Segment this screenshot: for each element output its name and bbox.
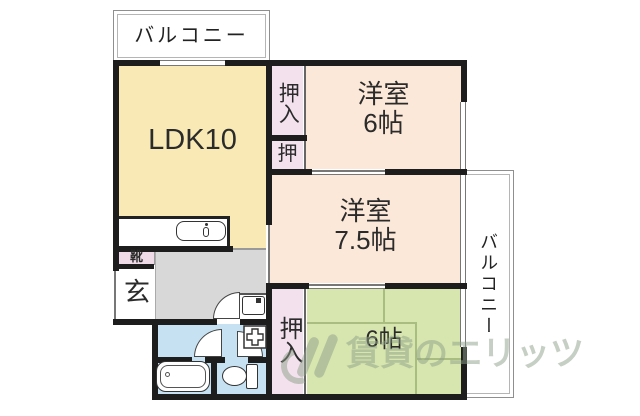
kitchen-sink-icon <box>176 221 226 241</box>
bathtub-drain <box>165 372 170 377</box>
western6-name: 洋室 <box>306 80 461 109</box>
western75-name: 洋室 <box>270 197 461 226</box>
wall-segment <box>113 264 154 269</box>
wall-segment <box>268 60 467 66</box>
entrance-label: 玄 <box>119 278 155 307</box>
wall-segment <box>113 60 160 66</box>
closet-top-label: 押入 <box>272 72 303 134</box>
tatami-line <box>383 289 385 322</box>
western75-label: 洋室 7.5帖 <box>270 197 461 255</box>
kitchen-faucet-icon <box>203 227 209 237</box>
kitchen-faucet-dot <box>205 223 208 226</box>
opening-line <box>233 248 266 250</box>
watermark-text: 賃貸のエリッツ <box>346 326 584 375</box>
wall-segment <box>461 60 467 102</box>
window <box>160 60 225 66</box>
toilet-tank <box>246 364 258 389</box>
western6-label: 洋室 6帖 <box>306 80 461 138</box>
balcony-top-label: バルコニー <box>113 25 270 47</box>
western6-size: 6帖 <box>306 109 461 138</box>
western75-size: 7.5帖 <box>270 226 461 255</box>
wall-segment <box>248 357 266 363</box>
sliding-door <box>312 174 385 176</box>
wall-segment <box>113 60 119 271</box>
sliding-door <box>307 288 385 290</box>
tatami-line <box>307 322 415 324</box>
washbasin-icon <box>242 296 265 315</box>
closet-mid-label: 押 <box>272 143 303 165</box>
wall-segment <box>266 169 312 175</box>
wall-segment <box>385 283 467 289</box>
washbasin-faucet <box>256 298 261 303</box>
sliding-door <box>312 170 385 172</box>
entrance-door <box>114 271 116 319</box>
sliding-door <box>307 284 385 286</box>
floor-plan: バルコニー LDK10 洋室 6帖 洋室 7.5帖 6帖 押入 押 押入 玄 靴… <box>0 0 640 416</box>
washer-pan-icon <box>243 325 267 349</box>
wall-segment <box>385 169 467 175</box>
wall-segment <box>266 135 307 141</box>
shoe-box-label: 靴 <box>119 250 154 265</box>
ldk-label: LDK10 <box>119 124 266 156</box>
wall-segment <box>266 283 309 289</box>
toilet-icon <box>222 366 247 386</box>
wall-segment <box>225 60 270 66</box>
wall-segment <box>152 394 467 400</box>
wall-segment <box>152 319 217 325</box>
